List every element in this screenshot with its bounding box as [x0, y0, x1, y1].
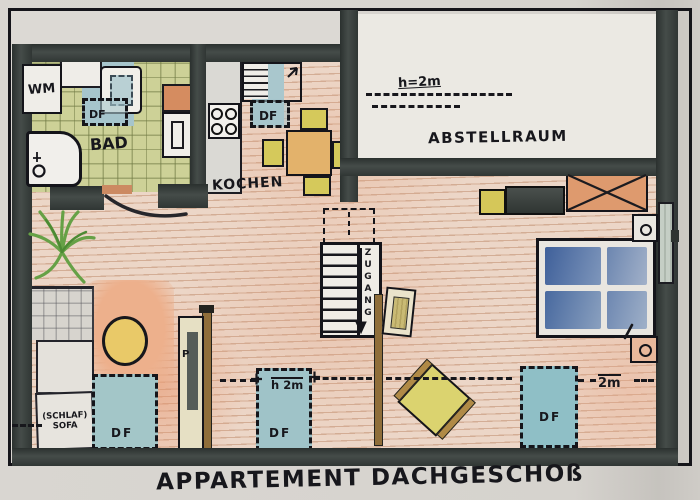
- bathroom-roof-window-label: DF: [89, 109, 106, 120]
- stove: [208, 103, 240, 139]
- height-line-segment: [578, 379, 596, 382]
- sideboard-dark: [505, 186, 565, 215]
- nightstand-lamp: [639, 344, 652, 357]
- height-label-mid: h 2m: [271, 377, 303, 392]
- sink-rack: [244, 64, 268, 99]
- round-table: [102, 316, 148, 366]
- kitchen-sink-unit: [242, 62, 302, 102]
- window-right-wall: [658, 202, 674, 284]
- sofa-label-line2: SOFA: [53, 422, 78, 431]
- double-bed: [536, 238, 656, 338]
- nightstand-bottom: [630, 336, 658, 363]
- washing-machine: WM: [22, 64, 62, 114]
- wall-stub-left: [50, 186, 104, 210]
- storage-label: ABSTELLRAUM: [428, 129, 568, 146]
- storage-height-line2: [372, 105, 460, 108]
- height-line-segment: [12, 424, 42, 427]
- wall-top: [12, 44, 352, 62]
- height-line-segment: [634, 379, 654, 382]
- stair-treads: [323, 245, 357, 335]
- height-line-segment: [314, 377, 372, 380]
- wall-storage-bottom: [340, 158, 678, 176]
- chair-west: [262, 139, 284, 167]
- height-line-segment: [386, 377, 512, 380]
- bed-pillow: [607, 291, 647, 329]
- sleep-sofa: (SCHLAF) SOFA: [35, 391, 95, 451]
- bed-pillow: [607, 247, 647, 285]
- shower: [26, 131, 82, 187]
- sink-basin: [268, 64, 284, 99]
- armchair: [396, 362, 470, 436]
- roof-window-left-label: DF: [111, 427, 133, 439]
- sofa-label-line1: (SCHLAF): [42, 411, 87, 421]
- beam-picture-inner: [390, 296, 409, 329]
- stair-divider: [357, 245, 360, 335]
- wardrobe-pillar: P: [178, 316, 204, 450]
- nightstand-lamp: [640, 224, 652, 236]
- paper-margin: [11, 11, 341, 45]
- bathroom-cabinet: [60, 60, 102, 88]
- roof-window-mid-label: DF: [269, 427, 291, 439]
- washing-machine-label: WM: [28, 82, 56, 97]
- stairs: ZUGANG: [320, 242, 382, 338]
- roof-window-right: DF: [520, 366, 578, 448]
- bed-duvet: [545, 291, 601, 329]
- kitchen-label: KOCHEN: [212, 175, 284, 193]
- sideboard-yellow: [479, 189, 506, 215]
- bed-duvet: [545, 247, 601, 285]
- storage-height-label: h=2m: [398, 75, 441, 90]
- wood-beam-right: [374, 294, 383, 446]
- floorplan-sketch: WM DF BAD DF KOCHEN h=2m ABSTELLRAUM ZUG…: [0, 0, 700, 500]
- roof-window-mid: h 2m DF: [256, 368, 312, 452]
- sofa-back: [36, 340, 94, 394]
- stairs-dashed-outline: [323, 208, 375, 244]
- stairs-label: ZUGANG: [363, 248, 372, 320]
- wardrobe-crossed: [566, 172, 648, 212]
- chair-south: [303, 176, 331, 196]
- wall-stub-right: [158, 184, 208, 208]
- height-label-right: 2m: [598, 374, 621, 390]
- wardrobe-pillar-door: [187, 332, 198, 410]
- wardrobe-pillar-label: P: [182, 350, 189, 360]
- height-line-segment: [220, 379, 256, 382]
- sideboard-pencil: [32, 286, 94, 340]
- roof-window-right-label: DF: [539, 411, 561, 423]
- toilet-bowl: [171, 121, 184, 149]
- dining-table: [286, 130, 332, 176]
- bathroom-shelf: [162, 84, 192, 112]
- beam-picture-frame: [382, 287, 417, 338]
- kitchen-roof-window: DF: [250, 100, 290, 128]
- wood-beam-left-cap: [199, 305, 214, 313]
- chair-north: [300, 108, 328, 130]
- bathroom-roof-window: DF: [82, 98, 128, 126]
- bathroom-door-threshold: [102, 185, 132, 194]
- kitchen-roof-window-label: DF: [259, 110, 277, 122]
- bathroom-label: BAD: [89, 135, 128, 154]
- armchair-seat: [397, 363, 470, 436]
- storage-height-line: [366, 93, 512, 96]
- toilet: [162, 112, 192, 158]
- nightstand-top: [632, 214, 658, 242]
- wall-bathroom-right: [190, 44, 206, 190]
- plan-title: APPARTEMENT DACHGESCHOß: [150, 462, 590, 494]
- roof-window-left: DF: [92, 374, 158, 450]
- window-handle: [671, 230, 679, 242]
